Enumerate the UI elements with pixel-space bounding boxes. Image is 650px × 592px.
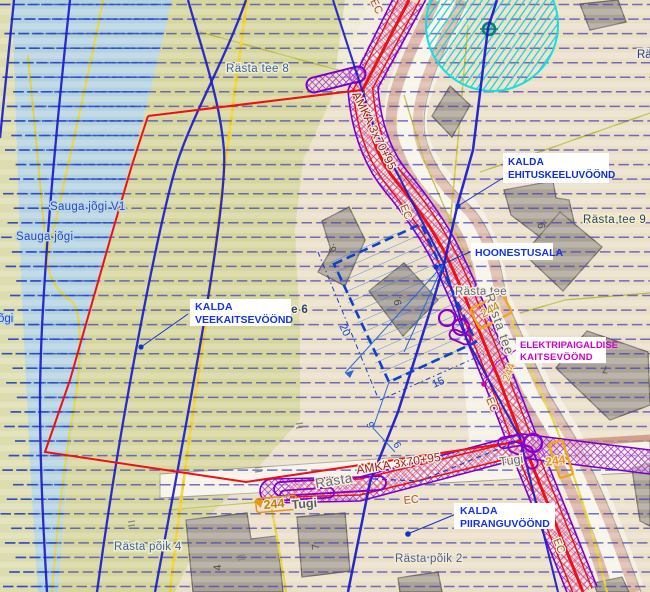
svg-text:7: 7 — [602, 363, 609, 375]
svg-text:ELEKTRIPAIGALDISE: ELEKTRIPAIGALDISE — [520, 340, 618, 351]
svg-text:9.: 9. — [536, 219, 549, 229]
svg-text:Rästa põik 4: Rästa põik 4 — [114, 541, 182, 553]
svg-text:õgi: õgi — [0, 313, 13, 325]
svg-text:Rä: Rä — [637, 49, 650, 61]
svg-text:KALDA: KALDA — [508, 157, 544, 168]
svg-text:PIIRANGUVÖÖND: PIIRANGUVÖÖND — [460, 517, 550, 530]
svg-text:Tugi: Tugi — [291, 496, 318, 512]
svg-text:244: 244 — [263, 496, 285, 512]
svg-text:Sauga jõgi: Sauga jõgi — [16, 231, 73, 243]
svg-text:VEEKAITSEVÖÖND: VEEKAITSEVÖÖND — [195, 313, 293, 326]
svg-text:Rästa tee: Rästa tee — [455, 286, 507, 298]
svg-text:Rästa tee 9: Rästa tee 9 — [583, 214, 646, 226]
svg-text:244: 244 — [544, 452, 566, 469]
svg-text:KAITSEVÖÖND: KAITSEVÖÖND — [520, 352, 593, 363]
svg-text:HOONESTUSALA: HOONESTUSALA — [475, 247, 564, 259]
svg-text:EHITUSKEELUVÖÖND: EHITUSKEELUVÖÖND — [508, 168, 615, 181]
svg-text:KALDA: KALDA — [460, 505, 498, 517]
svg-text:Rästa tee 8: Rästa tee 8 — [226, 63, 289, 75]
svg-text:EC: EC — [403, 493, 420, 507]
svg-text:4: 4 — [212, 564, 224, 571]
svg-text:Rästa põik 2: Rästa põik 2 — [395, 553, 463, 565]
svg-text:7: 7 — [310, 543, 322, 550]
svg-text:Sauga jõgi V1: Sauga jõgi V1 — [50, 201, 126, 213]
svg-text:KALDA: KALDA — [195, 301, 233, 313]
